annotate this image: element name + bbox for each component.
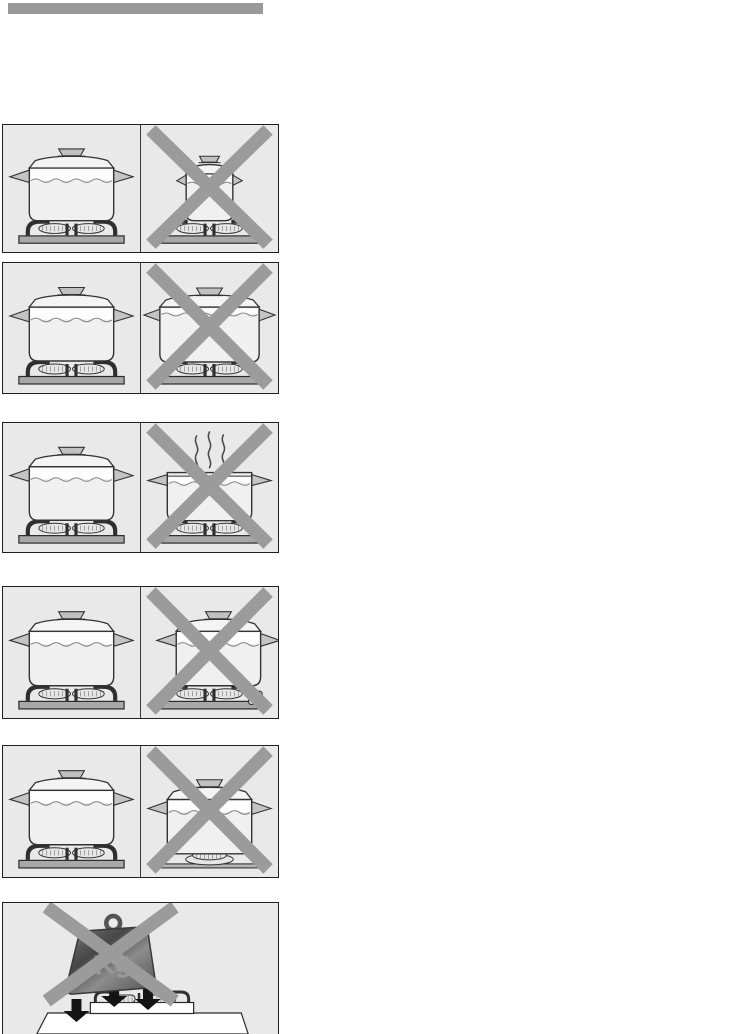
panel-heavy-objects: Kg: [2, 902, 279, 1034]
prohibition-cross-icon: [151, 130, 268, 244]
correct-pan-centred-illustration: [10, 612, 133, 709]
panel-pan-width: [2, 262, 279, 394]
correct-pan-illustration: [10, 288, 133, 385]
pot-icon: [10, 288, 133, 362]
panel-pan-size: [2, 124, 279, 253]
hob-surface: [37, 1013, 248, 1034]
wrong-pan-offset-illustration: [151, 592, 278, 710]
burner-icon: [19, 846, 124, 868]
pot-icon: [10, 149, 133, 221]
burner-icon: [19, 521, 124, 543]
pot-icon: [10, 612, 133, 686]
wrong-pan-on-burner-illustration: [148, 751, 271, 869]
burner-icon: [19, 687, 124, 709]
panel-pan-position: [2, 586, 279, 719]
wrong-pan-too-small-illustration: [151, 130, 268, 244]
pot-icon: [10, 447, 133, 520]
header-bar: [8, 3, 263, 14]
panel-pan-lid: [2, 422, 279, 553]
wrong-pan-without-lid-illustration: [148, 428, 271, 544]
steam-icon: [195, 432, 224, 471]
burner-icon: [19, 222, 124, 243]
correct-pan-on-support-illustration: [10, 771, 133, 868]
wrong-pan-oversized-illustration: [144, 268, 275, 385]
correct-pan-with-lid-illustration: [10, 447, 133, 543]
pot-icon: [10, 771, 133, 845]
burner-icon: [19, 362, 124, 384]
panel-pan-support: [2, 745, 279, 878]
correct-pan-illustration: [10, 149, 133, 243]
